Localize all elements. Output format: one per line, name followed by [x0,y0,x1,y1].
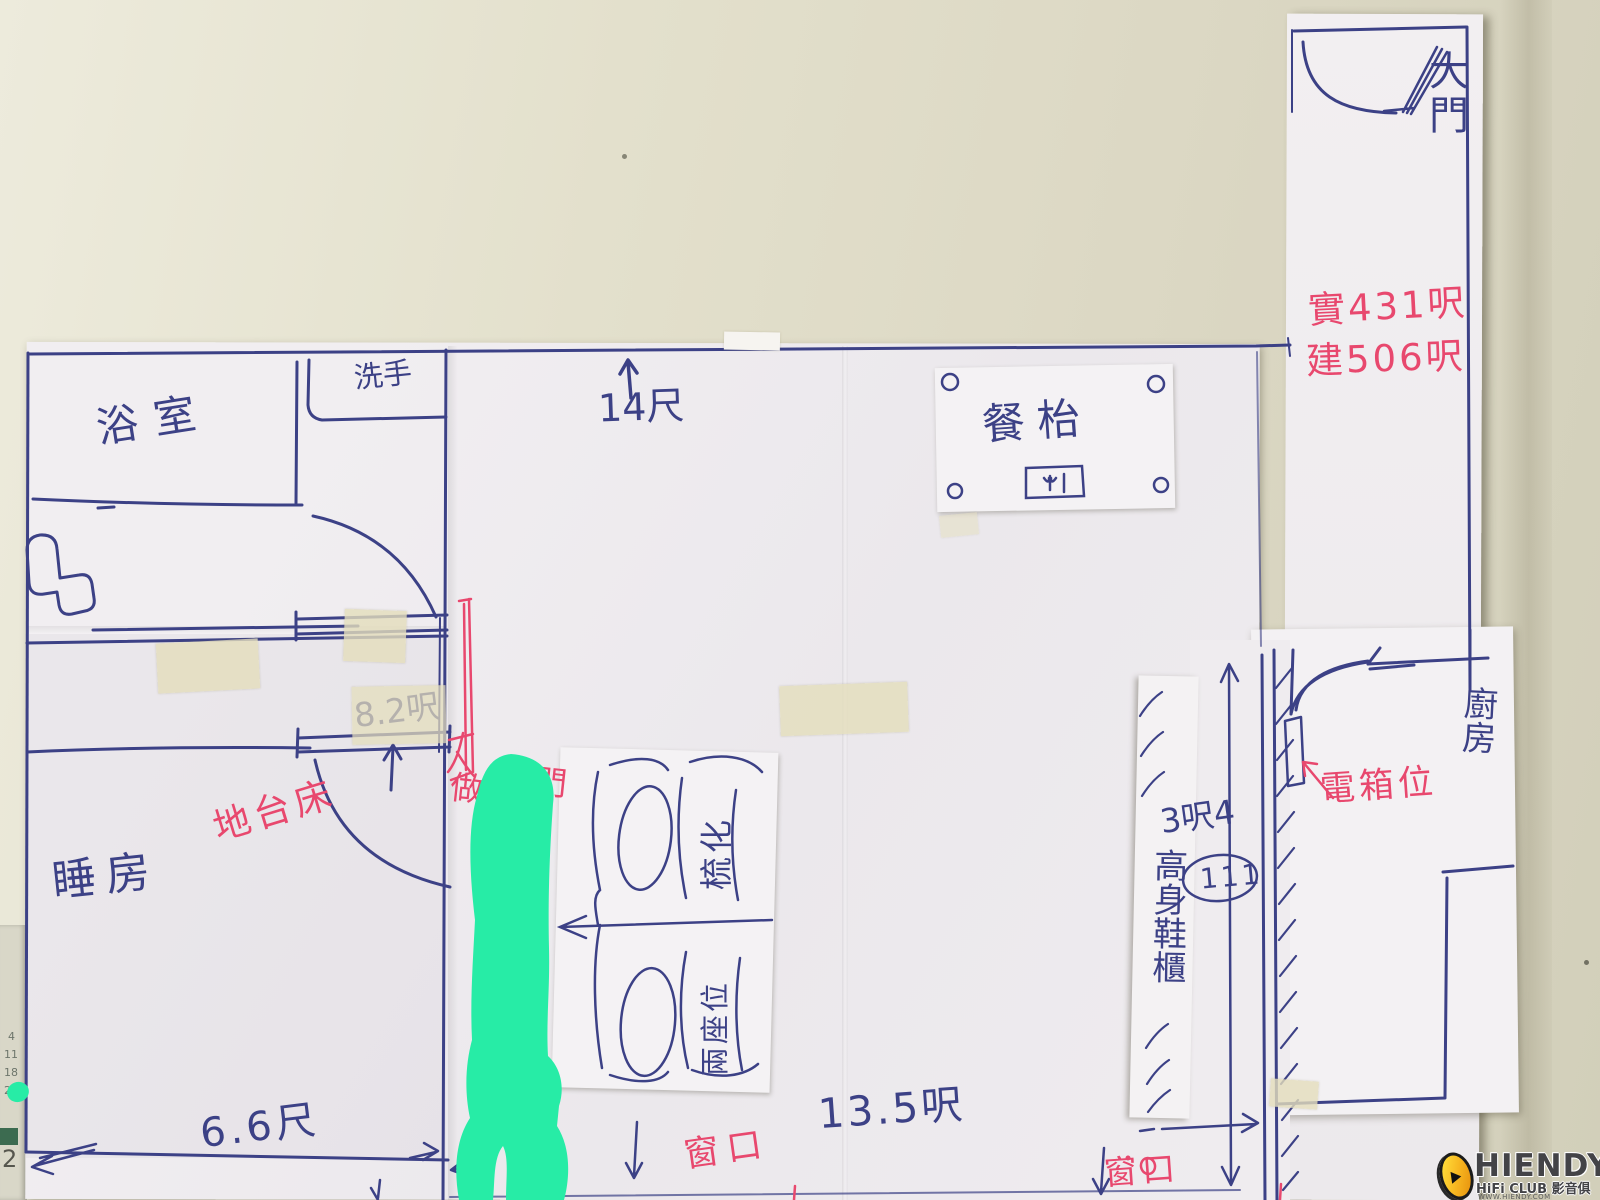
photo-of-floorplan: 4 11 18 25 2 [0,0,1600,1200]
censor-highlight-blob [456,754,568,1200]
watermark-url: WWW.HIENDY.COM [1478,1193,1551,1200]
speaker-wedge-icon [1451,1170,1463,1183]
speaker-cone-icon [1434,1148,1479,1200]
censor-highlight-dot [4,1079,32,1105]
censor-highlight-layer [0,0,1600,1200]
watermark: HIENDY HiFi CLUB 影音俱樂部 WWW.HIENDY.COM [1390,1116,1600,1200]
